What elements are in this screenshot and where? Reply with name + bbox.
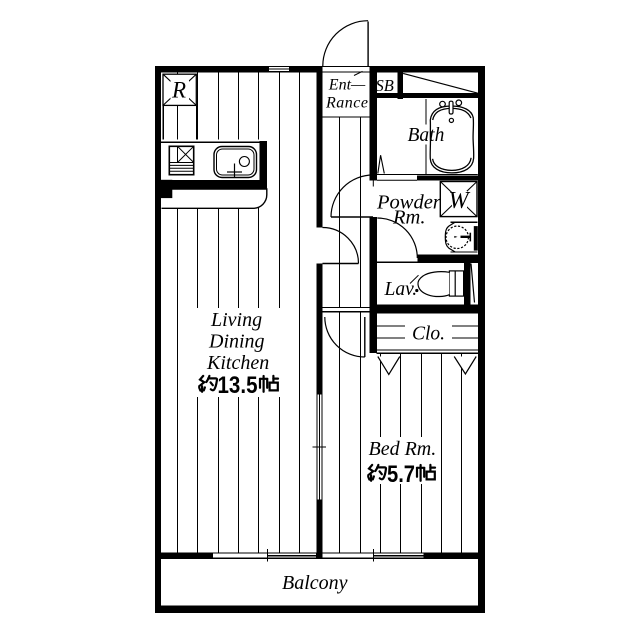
svg-text:Bath: Bath bbox=[408, 125, 445, 146]
svg-text:Living: Living bbox=[210, 309, 262, 331]
svg-text:R: R bbox=[171, 78, 186, 103]
svg-text:Rance: Rance bbox=[325, 95, 368, 112]
svg-text:W: W bbox=[449, 188, 471, 214]
svg-text:Kitchen: Kitchen bbox=[206, 352, 269, 374]
svg-text:Rm.: Rm. bbox=[392, 207, 425, 229]
svg-text:13.5: 13.5 bbox=[218, 372, 258, 399]
svg-text:Clo.: Clo. bbox=[412, 324, 445, 345]
svg-text:Ent—: Ent— bbox=[328, 77, 366, 94]
svg-text:5.7: 5.7 bbox=[387, 461, 415, 488]
svg-text:Balcony: Balcony bbox=[282, 572, 348, 594]
svg-text:SB: SB bbox=[376, 76, 394, 95]
svg-text:Bed Rm.: Bed Rm. bbox=[369, 438, 437, 460]
svg-text:Dining: Dining bbox=[208, 331, 265, 353]
svg-text:Lav.: Lav. bbox=[384, 279, 418, 300]
